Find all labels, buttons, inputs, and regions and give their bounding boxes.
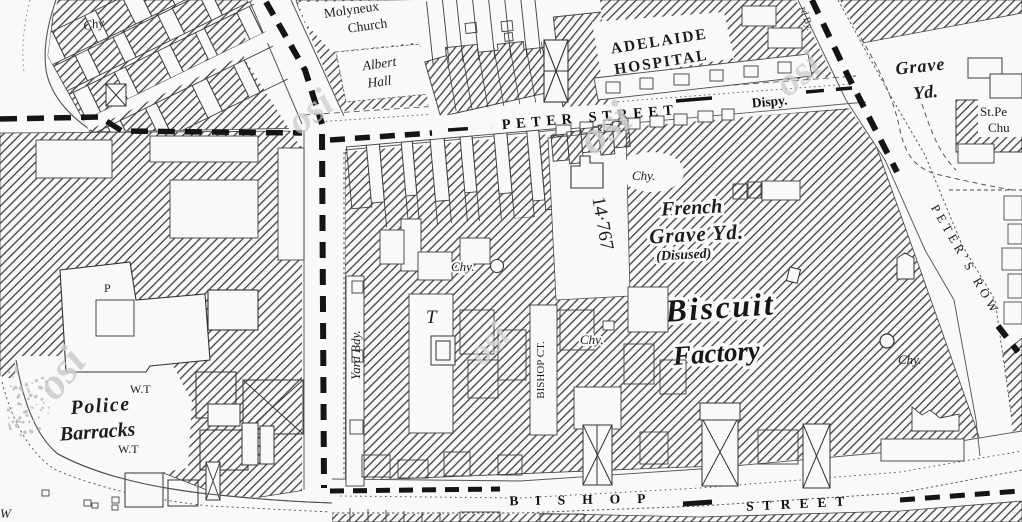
svg-text:Factory: Factory — [671, 335, 762, 371]
svg-text:French: French — [660, 195, 723, 220]
svg-text:Grave Yd.: Grave Yd. — [649, 220, 745, 249]
svg-text:Dispy.: Dispy. — [751, 92, 788, 110]
svg-text:(Disused): (Disused) — [656, 247, 712, 265]
svg-text:W.T: W.T — [130, 382, 151, 396]
svg-text:Chy.: Chy. — [632, 168, 655, 183]
svg-text:Yd.: Yd. — [912, 81, 938, 103]
svg-text:Chy.: Chy. — [451, 259, 474, 274]
svg-text:W.T: W.T — [118, 442, 139, 456]
svg-text:P: P — [104, 281, 111, 295]
svg-text:Chy.: Chy. — [898, 352, 921, 367]
svg-text:BISHOP: BISHOP — [509, 491, 662, 509]
svg-text:T: T — [426, 307, 438, 328]
svg-text:W: W — [0, 506, 12, 521]
svg-text:BISHOP CT.: BISHOP CT. — [535, 341, 547, 399]
svg-text:Chu: Chu — [988, 120, 1010, 135]
svg-text:Police: Police — [69, 393, 131, 419]
svg-text:St.Pe: St.Pe — [980, 104, 1007, 119]
svg-text:Chy.: Chy. — [580, 332, 603, 347]
svg-text:Yard Bdy.: Yard Bdy. — [348, 330, 363, 380]
